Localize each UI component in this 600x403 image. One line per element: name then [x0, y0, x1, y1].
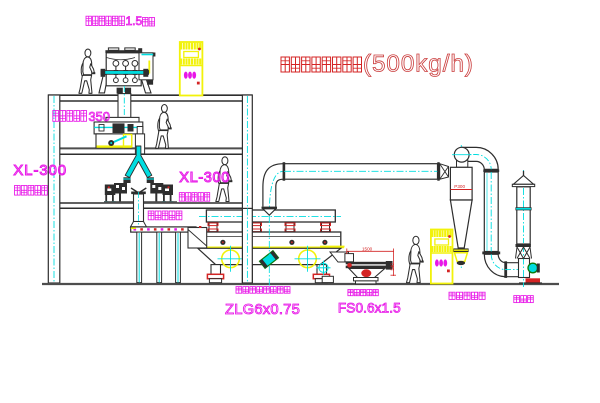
svg-text:350: 350	[89, 109, 110, 124]
svg-text:P300: P300	[454, 184, 465, 189]
svg-text:ZLG6x0.75: ZLG6x0.75	[225, 302, 300, 318]
svg-text:540: 540	[390, 263, 395, 271]
svg-text:(500kg/h): (500kg/h)	[363, 51, 474, 78]
svg-text:FS0.6x1.5: FS0.6x1.5	[338, 301, 401, 316]
svg-text:1500: 1500	[362, 246, 373, 251]
svg-text:1.5: 1.5	[126, 14, 143, 28]
svg-text:XL-300: XL-300	[13, 163, 67, 179]
svg-text:XL-300: XL-300	[179, 170, 230, 186]
